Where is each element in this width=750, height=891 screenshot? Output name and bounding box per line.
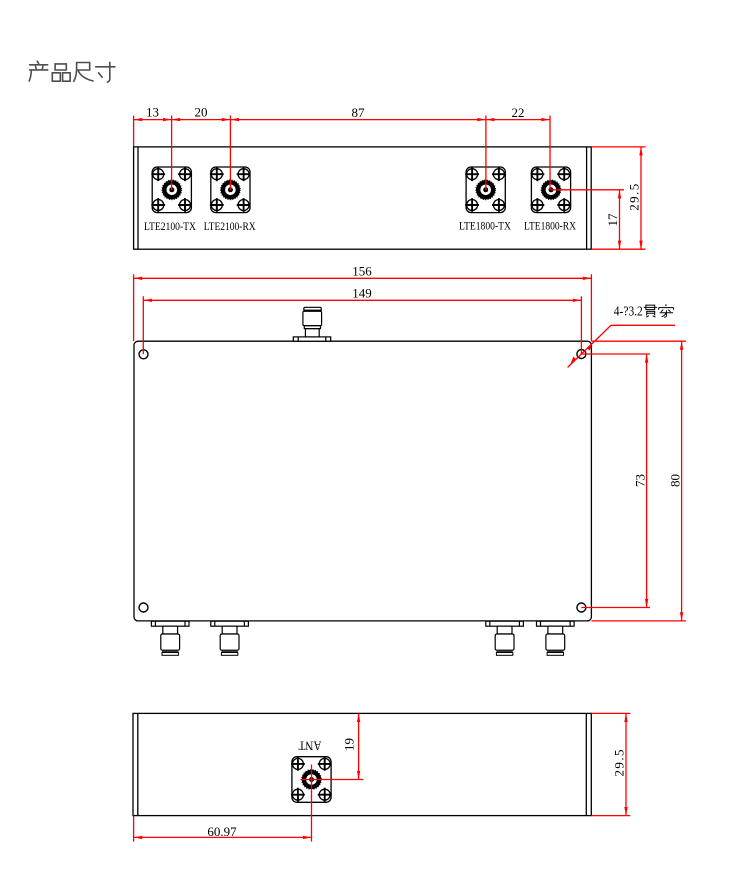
svg-text:87: 87	[352, 105, 366, 120]
svg-text:149: 149	[352, 286, 372, 301]
svg-text:60.97: 60.97	[207, 824, 237, 839]
svg-text:29.5: 29.5	[627, 184, 642, 211]
svg-text:13: 13	[146, 105, 159, 120]
svg-text:17: 17	[605, 213, 620, 227]
svg-text:80: 80	[667, 474, 682, 487]
svg-text:19: 19	[342, 738, 357, 751]
svg-text:LTE2100-TX: LTE2100-TX	[144, 221, 197, 233]
svg-text:73: 73	[632, 474, 647, 487]
svg-text:4-?3.2: 4-?3.2	[614, 305, 643, 320]
svg-text:20: 20	[195, 105, 208, 120]
svg-text:156: 156	[352, 264, 372, 279]
svg-text:LTE1800-RX: LTE1800-RX	[524, 221, 577, 233]
svg-text:ANT: ANT	[298, 739, 321, 754]
svg-text:22: 22	[512, 105, 525, 120]
svg-text:LTE1800-TX: LTE1800-TX	[459, 221, 512, 233]
svg-text:LTE2100-RX: LTE2100-RX	[204, 221, 257, 233]
svg-text:29.5: 29.5	[612, 750, 627, 777]
